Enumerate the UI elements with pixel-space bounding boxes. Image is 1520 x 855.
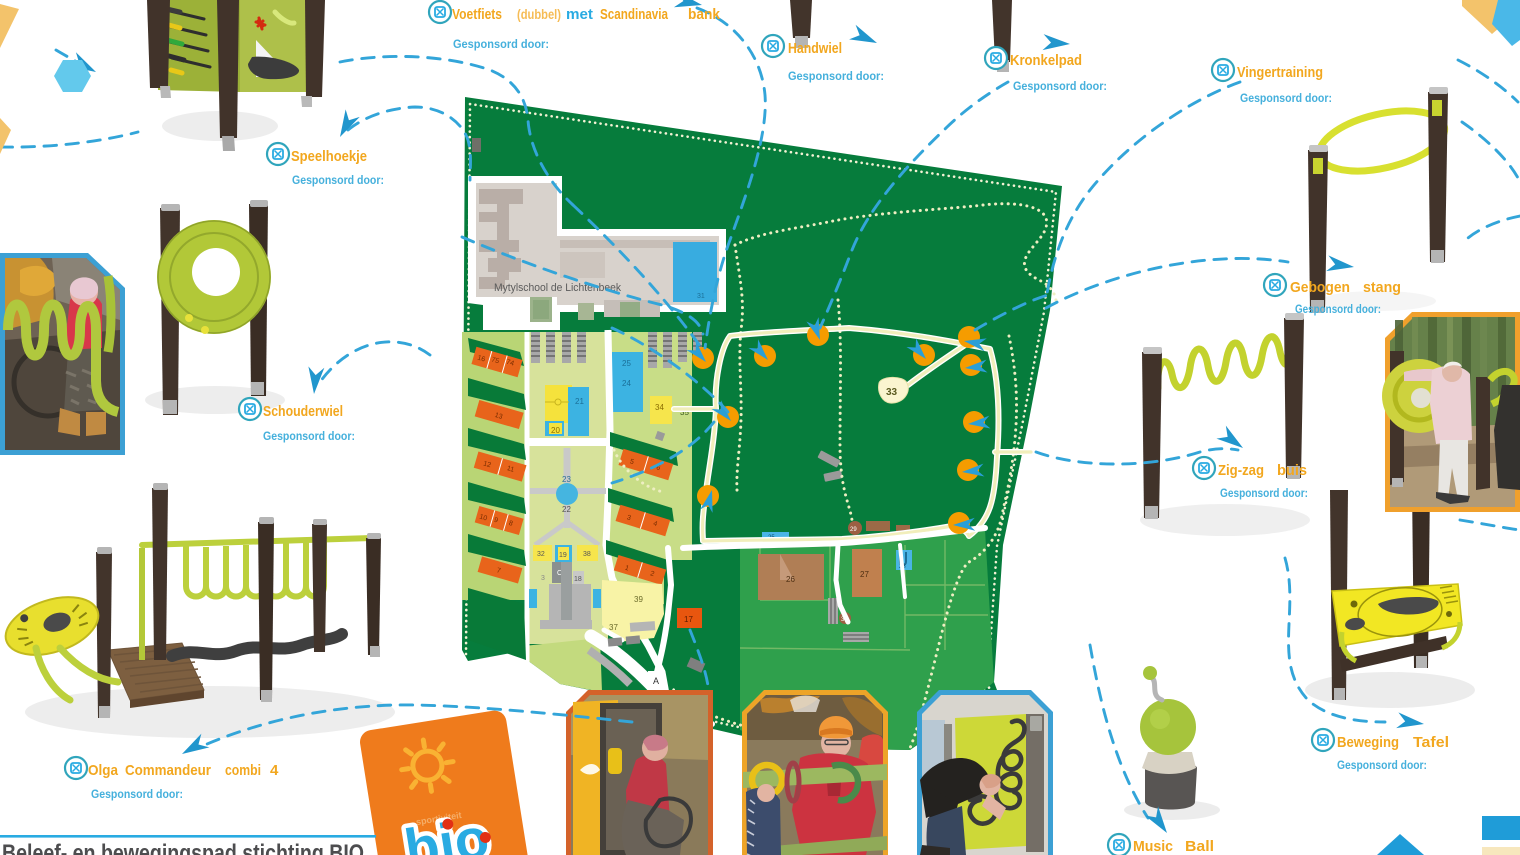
svg-text:Beleef- en bewegingspad sticht: Beleef- en bewegingspad stichting BIO	[2, 840, 364, 855]
svg-text:Gebogen: Gebogen	[1290, 279, 1350, 296]
svg-text:Scandinavia: Scandinavia	[600, 6, 669, 23]
svg-text:Voetfiets: Voetfiets	[452, 6, 502, 23]
svg-text:Gesponsord door:: Gesponsord door:	[1240, 91, 1332, 105]
svg-text:4: 4	[270, 762, 279, 779]
svg-text:Olga: Olga	[88, 762, 119, 779]
svg-text:31: 31	[697, 293, 705, 300]
svg-text:Gesponsord door:: Gesponsord door:	[292, 173, 384, 187]
svg-text:29: 29	[850, 527, 857, 533]
svg-text:25: 25	[622, 359, 631, 368]
svg-text:A: A	[653, 676, 659, 686]
svg-text:Vingertraining: Vingertraining	[1237, 64, 1323, 81]
svg-text:Speelhoekje: Speelhoekje	[291, 148, 367, 165]
svg-text:Gesponsord door:: Gesponsord door:	[91, 787, 183, 801]
svg-text:Handwiel: Handwiel	[788, 40, 842, 57]
svg-text:buis: buis	[1277, 462, 1307, 479]
svg-text:37: 37	[609, 623, 618, 632]
svg-text:bank: bank	[688, 6, 721, 23]
svg-text:21: 21	[575, 397, 584, 406]
svg-text:Tafel: Tafel	[1413, 734, 1449, 751]
svg-text:18: 18	[574, 576, 582, 583]
svg-text:3: 3	[541, 575, 545, 582]
svg-text:20: 20	[551, 426, 560, 435]
svg-text:26: 26	[786, 575, 795, 584]
svg-text:27: 27	[860, 570, 869, 579]
svg-text:Beweging: Beweging	[1337, 734, 1399, 751]
svg-text:24: 24	[622, 379, 631, 388]
svg-text:(dubbel): (dubbel)	[517, 6, 561, 22]
svg-text:23: 23	[562, 475, 571, 484]
svg-text:19: 19	[559, 552, 567, 559]
svg-text:Music: Music	[1133, 838, 1173, 855]
svg-text:Gesponsord door:: Gesponsord door:	[1295, 302, 1381, 316]
svg-text:Gesponsord door:: Gesponsord door:	[263, 429, 355, 443]
svg-text:38: 38	[583, 551, 591, 558]
svg-text:33: 33	[886, 387, 898, 398]
svg-text:39: 39	[634, 595, 643, 604]
svg-text:Gesponsord door:: Gesponsord door:	[453, 37, 549, 51]
svg-text:Gesponsord door:: Gesponsord door:	[788, 69, 884, 83]
svg-text:Mytylschool de Lichtenbeek: Mytylschool de Lichtenbeek	[494, 282, 621, 294]
svg-text:Zig-zag: Zig-zag	[1218, 462, 1264, 479]
svg-text:22: 22	[562, 505, 571, 514]
svg-text:32: 32	[537, 551, 545, 558]
svg-text:17: 17	[684, 615, 693, 624]
svg-text:met: met	[566, 6, 593, 23]
svg-text:Commandeur: Commandeur	[125, 762, 211, 779]
svg-text:Ball: Ball	[1185, 838, 1214, 855]
svg-text:Kronkelpad: Kronkelpad	[1010, 52, 1082, 69]
svg-text:Gesponsord door:: Gesponsord door:	[1220, 486, 1308, 500]
svg-text:Schouderwiel: Schouderwiel	[263, 403, 343, 420]
svg-text:Gesponsord door:: Gesponsord door:	[1013, 79, 1107, 93]
svg-text:stang: stang	[1363, 279, 1401, 296]
svg-text:Gesponsord door:: Gesponsord door:	[1337, 758, 1427, 772]
svg-text:combi: combi	[225, 762, 261, 779]
